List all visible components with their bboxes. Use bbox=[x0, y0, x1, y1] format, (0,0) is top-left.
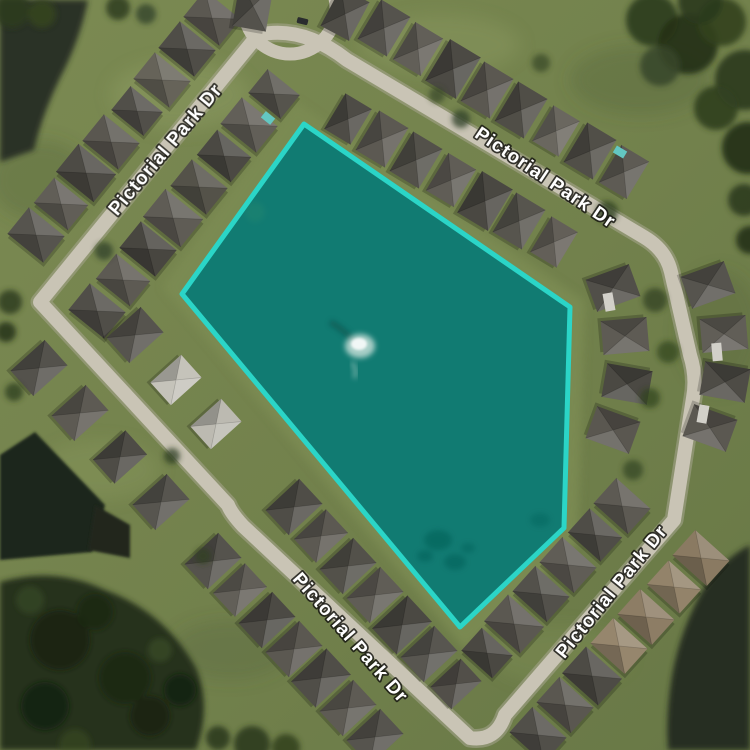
satellite-map[interactable]: Pictorial Park Dr Pictorial Park Dr Pict… bbox=[0, 0, 750, 750]
